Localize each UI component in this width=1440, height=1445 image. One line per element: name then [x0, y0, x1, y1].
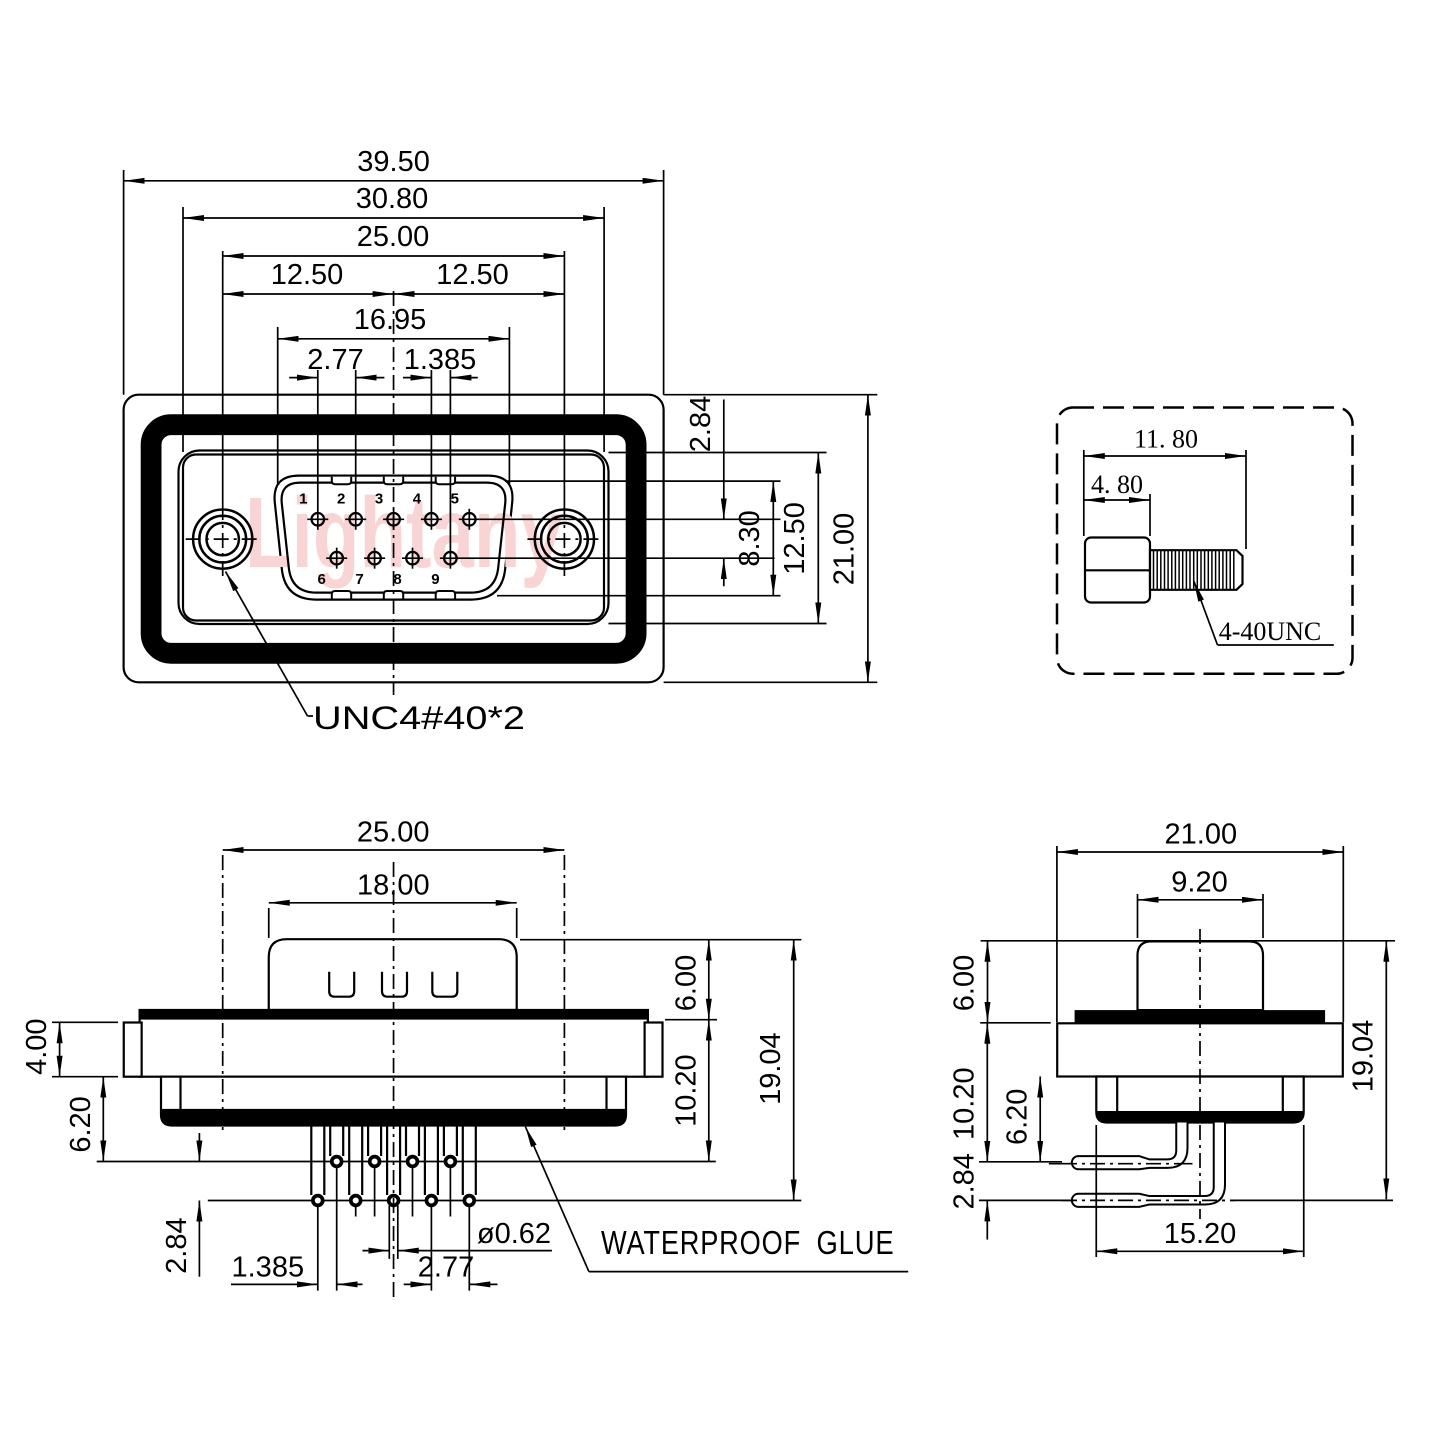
- svg-text:Lightany: Lightany: [245, 477, 563, 589]
- svg-text:21.00: 21.00: [829, 513, 861, 586]
- svg-text:2.84: 2.84: [685, 396, 717, 452]
- svg-text:4. 80: 4. 80: [1091, 470, 1143, 499]
- svg-text:8.30: 8.30: [734, 510, 766, 566]
- svg-text:2.84: 2.84: [161, 1217, 193, 1273]
- svg-text:5: 5: [451, 491, 459, 508]
- svg-text:WATERPROOF: WATERPROOF: [601, 1224, 801, 1261]
- svg-text:2: 2: [337, 491, 345, 508]
- svg-text:6.20: 6.20: [65, 1096, 97, 1152]
- svg-text:1.385: 1.385: [404, 344, 477, 376]
- svg-text:6: 6: [318, 571, 326, 588]
- svg-text:19.04: 19.04: [755, 1032, 787, 1105]
- svg-text:6.00: 6.00: [949, 955, 981, 1011]
- svg-text:10.20: 10.20: [948, 1067, 980, 1140]
- svg-text:30.80: 30.80: [356, 183, 429, 215]
- svg-text:12.50: 12.50: [436, 259, 509, 291]
- svg-text:GLUE: GLUE: [817, 1224, 895, 1261]
- svg-text:21.00: 21.00: [1165, 819, 1238, 851]
- svg-text:25.00: 25.00: [357, 221, 430, 253]
- svg-text:25.00: 25.00: [357, 817, 430, 849]
- svg-text:4: 4: [413, 491, 422, 508]
- svg-text:1: 1: [299, 491, 307, 508]
- svg-text:9.20: 9.20: [1171, 866, 1227, 898]
- svg-text:9: 9: [431, 571, 439, 588]
- svg-text:UNC4#40*2: UNC4#40*2: [313, 700, 525, 736]
- svg-text:39.50: 39.50: [357, 146, 430, 178]
- svg-text:ø0.62: ø0.62: [477, 1218, 551, 1250]
- svg-text:1.385: 1.385: [232, 1251, 305, 1283]
- svg-text:2.77: 2.77: [418, 1251, 474, 1283]
- svg-text:18.00: 18.00: [357, 869, 430, 901]
- svg-text:4-40UNC: 4-40UNC: [1219, 617, 1322, 646]
- svg-text:3: 3: [375, 491, 383, 508]
- svg-text:11. 80: 11. 80: [1134, 425, 1198, 454]
- svg-text:6.20: 6.20: [1002, 1089, 1034, 1145]
- svg-text:8: 8: [393, 571, 401, 588]
- svg-text:6.00: 6.00: [670, 955, 702, 1011]
- svg-text:12.50: 12.50: [779, 502, 811, 575]
- svg-text:10.20: 10.20: [670, 1054, 702, 1127]
- svg-text:16.95: 16.95: [354, 304, 427, 336]
- svg-text:4.00: 4.00: [21, 1018, 53, 1074]
- svg-text:2.84: 2.84: [948, 1153, 980, 1209]
- svg-text:12.50: 12.50: [271, 259, 344, 291]
- svg-text:2.77: 2.77: [307, 344, 363, 376]
- svg-text:7: 7: [355, 571, 363, 588]
- svg-text:15.20: 15.20: [1164, 1218, 1237, 1250]
- svg-text:19.04: 19.04: [1347, 1020, 1379, 1093]
